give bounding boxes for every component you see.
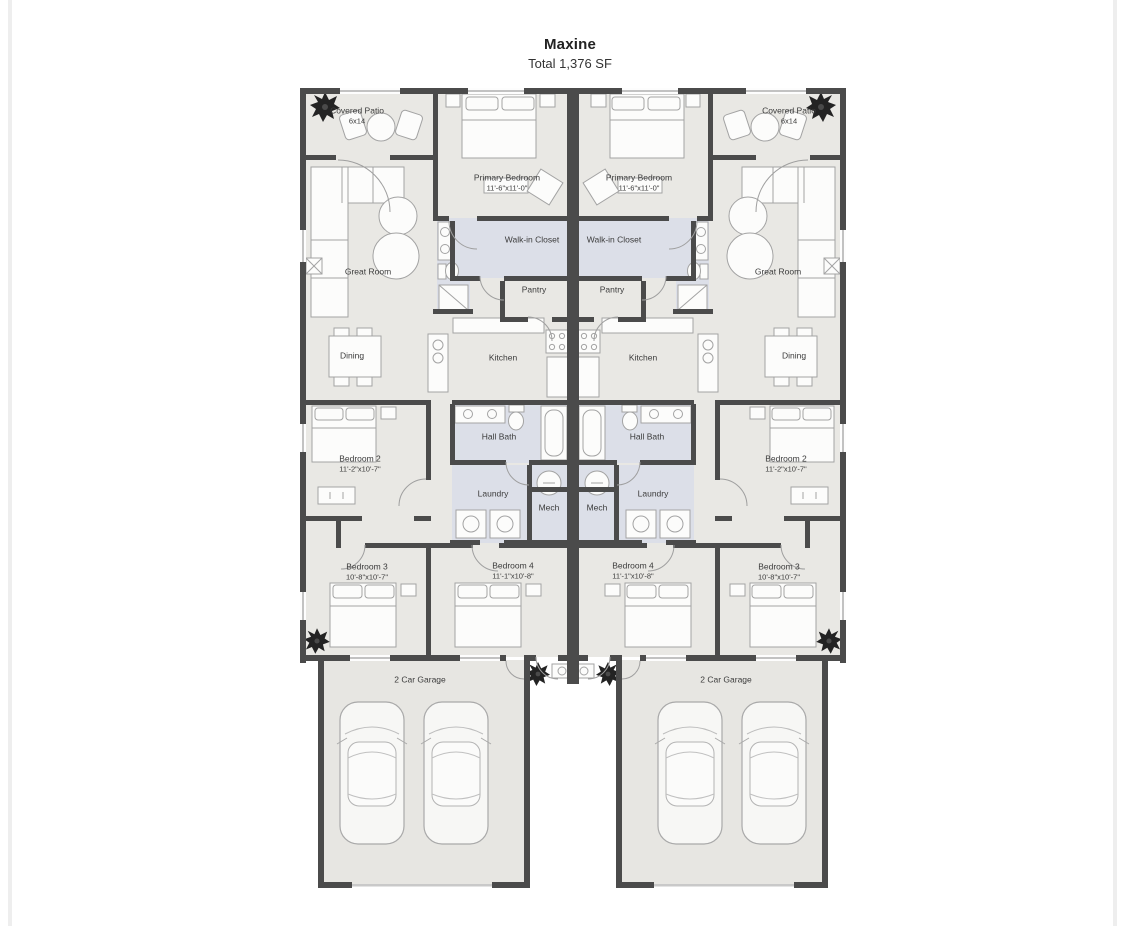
room-name: Great Room	[345, 266, 391, 277]
label-laundry-left: Laundry	[478, 488, 509, 499]
label-hall-bath-left: Hall Bath	[482, 431, 517, 442]
room-name: Dining	[340, 350, 364, 361]
label-dining-right: Dining	[782, 350, 806, 361]
room-name: Pantry	[522, 284, 547, 295]
room-name: Kitchen	[489, 352, 517, 363]
label-walk-in-closet-right: Walk-in Closet	[587, 234, 641, 245]
room-name: Primary Bedroom	[474, 173, 540, 184]
room-name: Hall Bath	[482, 431, 517, 442]
room-name: Bedroom 4	[492, 561, 534, 572]
floorplan-graphics	[0, 0, 1125, 926]
room-dims: 10'-8"x10'-7"	[346, 573, 388, 583]
room-name: Covered Patio	[330, 106, 384, 117]
room-name: Bedroom 2	[765, 454, 807, 465]
room-name: Mech	[587, 502, 608, 513]
room-name: Covered Patio	[762, 106, 816, 117]
unit-right	[569, 88, 846, 888]
label-covered-patio-left: Covered Patio 6x14	[330, 106, 384, 127]
label-walk-in-closet-left: Walk-in Closet	[505, 234, 559, 245]
label-bedroom-3-right: Bedroom 3 10'-8"x10'-7"	[758, 562, 800, 583]
label-mech-left: Mech	[539, 502, 560, 513]
label-laundry-right: Laundry	[638, 488, 669, 499]
room-name: 2 Car Garage	[700, 674, 752, 685]
room-name: Dining	[782, 350, 806, 361]
room-dims: 11'-1"x10'-8"	[492, 572, 534, 582]
room-name: Mech	[539, 502, 560, 513]
label-bedroom-2-left: Bedroom 2 11'-2"x10'-7"	[339, 454, 381, 475]
room-name: Bedroom 4	[612, 561, 654, 572]
label-bedroom-3-left: Bedroom 3 10'-8"x10'-7"	[346, 562, 388, 583]
room-name: Bedroom 3	[758, 562, 800, 573]
label-primary-bedroom-left: Primary Bedroom 11'-6"x11'-0"	[474, 173, 540, 194]
label-mech-right: Mech	[587, 502, 608, 513]
floorplan-canvas: Maxine Total 1,376 SF	[0, 0, 1125, 926]
label-hall-bath-right: Hall Bath	[630, 431, 665, 442]
label-kitchen-right: Kitchen	[629, 352, 657, 363]
room-dims: 11'-1"x10'-8"	[612, 572, 654, 582]
label-bedroom-4-right: Bedroom 4 11'-1"x10'-8"	[612, 561, 654, 582]
room-name: Primary Bedroom	[606, 173, 672, 184]
room-name: Laundry	[638, 488, 669, 499]
label-great-room-left: Great Room	[345, 266, 391, 277]
label-great-room-right: Great Room	[755, 266, 801, 277]
room-dims: 6x14	[330, 117, 384, 127]
room-name: Hall Bath	[630, 431, 665, 442]
label-pantry-left: Pantry	[522, 284, 547, 295]
label-covered-patio-right: Covered Patio 6x14	[762, 106, 816, 127]
room-dims: 6x14	[762, 117, 816, 127]
label-primary-bedroom-right: Primary Bedroom 11'-6"x11'-0"	[606, 173, 672, 194]
label-kitchen-left: Kitchen	[489, 352, 517, 363]
room-name: Walk-in Closet	[505, 234, 559, 245]
unit-left	[300, 88, 577, 888]
label-garage-right: 2 Car Garage	[700, 674, 752, 685]
label-garage-left: 2 Car Garage	[394, 674, 446, 685]
room-name: Kitchen	[629, 352, 657, 363]
room-name: Bedroom 2	[339, 454, 381, 465]
room-name: Walk-in Closet	[587, 234, 641, 245]
label-dining-left: Dining	[340, 350, 364, 361]
room-name: 2 Car Garage	[394, 674, 446, 685]
label-bedroom-2-right: Bedroom 2 11'-2"x10'-7"	[765, 454, 807, 475]
room-dims: 11'-6"x11'-0"	[474, 184, 540, 194]
room-name: Pantry	[600, 284, 625, 295]
room-dims: 11'-6"x11'-0"	[606, 184, 672, 194]
room-dims: 10'-8"x10'-7"	[758, 573, 800, 583]
room-dims: 11'-2"x10'-7"	[339, 465, 381, 475]
label-pantry-right: Pantry	[600, 284, 625, 295]
room-name: Great Room	[755, 266, 801, 277]
room-name: Laundry	[478, 488, 509, 499]
room-dims: 11'-2"x10'-7"	[765, 465, 807, 475]
label-bedroom-4-left: Bedroom 4 11'-1"x10'-8"	[492, 561, 534, 582]
room-name: Bedroom 3	[346, 562, 388, 573]
